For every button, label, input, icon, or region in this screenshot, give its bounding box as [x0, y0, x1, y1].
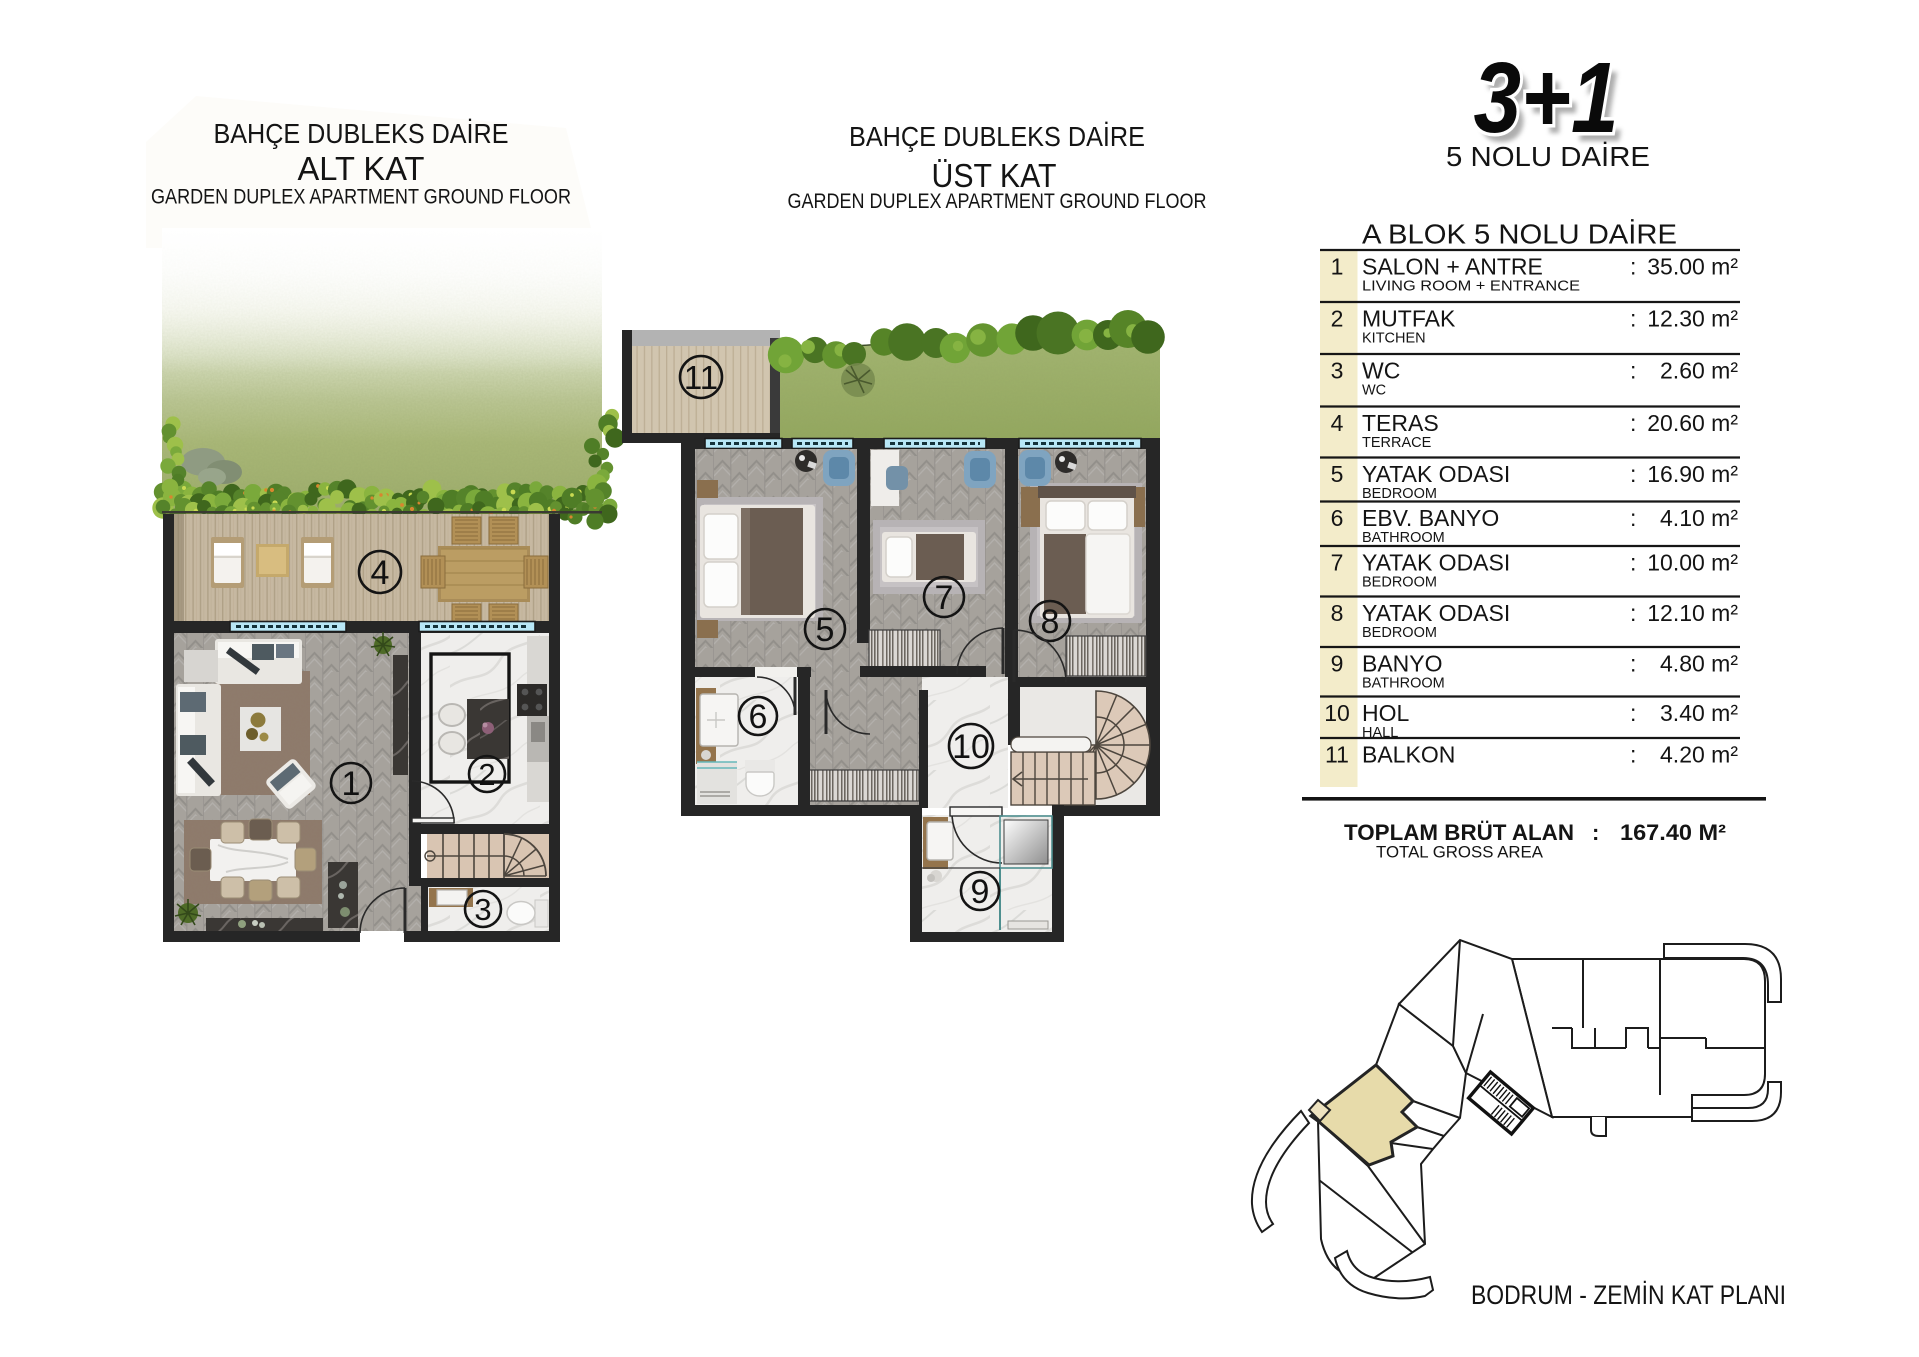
- svg-text:BEDROOM: BEDROOM: [1362, 486, 1437, 502]
- svg-text:10: 10: [1324, 700, 1350, 726]
- svg-text:LIVING ROOM + ENTRANCE: LIVING ROOM + ENTRANCE: [1362, 279, 1580, 295]
- svg-text:167.40 M²: 167.40 M²: [1620, 820, 1726, 845]
- svg-text:YATAK ODASI: YATAK ODASI: [1362, 600, 1510, 626]
- svg-text:9: 9: [971, 873, 990, 911]
- svg-text:2: 2: [1331, 306, 1344, 332]
- svg-text:HALL: HALL: [1362, 725, 1398, 741]
- svg-text::: :: [1630, 600, 1636, 626]
- svg-text::: :: [1630, 461, 1636, 487]
- svg-text:2: 2: [478, 757, 495, 792]
- svg-text:4: 4: [1331, 410, 1344, 436]
- svg-text:3.40 m²: 3.40 m²: [1660, 700, 1738, 726]
- svg-text::: :: [1630, 254, 1636, 280]
- svg-text:YATAK ODASI: YATAK ODASI: [1362, 461, 1510, 487]
- svg-text:6: 6: [749, 698, 768, 736]
- svg-text:BAHÇE DUBLEKS DAİRE: BAHÇE DUBLEKS DAİRE: [849, 121, 1145, 152]
- svg-text:MUTFAK: MUTFAK: [1362, 306, 1456, 332]
- svg-text:1: 1: [342, 765, 361, 803]
- svg-text:BATHROOM: BATHROOM: [1362, 530, 1445, 546]
- svg-text:9: 9: [1331, 651, 1344, 677]
- svg-text:WC: WC: [1362, 383, 1386, 399]
- svg-text:BODRUM - ZEMİN KAT PLANI: BODRUM - ZEMİN KAT PLANI: [1471, 1279, 1786, 1310]
- svg-text::: :: [1630, 505, 1636, 531]
- svg-text:35.00 m²: 35.00 m²: [1647, 254, 1738, 280]
- svg-text:3+1: 3+1: [1474, 42, 1619, 154]
- svg-text:10: 10: [952, 728, 990, 766]
- svg-text:BALKON: BALKON: [1362, 742, 1455, 768]
- svg-text:11: 11: [1325, 742, 1349, 768]
- svg-text:BAHÇE DUBLEKS DAİRE: BAHÇE DUBLEKS DAİRE: [214, 118, 509, 149]
- svg-text:20.60 m²: 20.60 m²: [1647, 410, 1738, 436]
- svg-text:16.90 m²: 16.90 m²: [1647, 461, 1738, 487]
- svg-text:TOPLAM BRÜT ALAN: TOPLAM BRÜT ALAN: [1344, 820, 1574, 845]
- svg-text:6: 6: [1331, 505, 1344, 531]
- svg-text:11: 11: [684, 359, 718, 396]
- svg-text:4.20 m²: 4.20 m²: [1660, 742, 1738, 768]
- svg-text:GARDEN DUPLEX APARTMENT GROUND: GARDEN DUPLEX APARTMENT GROUND FLOOR: [788, 190, 1207, 213]
- svg-text:ÜST KAT: ÜST KAT: [932, 157, 1057, 194]
- svg-text:TERAS: TERAS: [1362, 410, 1439, 436]
- svg-text:5 NOLU DAİRE: 5 NOLU DAİRE: [1446, 141, 1650, 172]
- svg-text:7: 7: [1331, 550, 1344, 576]
- svg-text::: :: [1592, 820, 1599, 845]
- svg-text:4.80 m²: 4.80 m²: [1660, 651, 1738, 677]
- svg-text:A BLOK 5 NOLU DAİRE: A BLOK 5 NOLU DAİRE: [1362, 219, 1677, 250]
- svg-text:YATAK ODASI: YATAK ODASI: [1362, 550, 1510, 576]
- svg-text:2.60 m²: 2.60 m²: [1660, 358, 1738, 384]
- svg-text:TERRACE: TERRACE: [1362, 435, 1432, 451]
- svg-text::: :: [1630, 358, 1636, 384]
- svg-text:4.10 m²: 4.10 m²: [1660, 505, 1738, 531]
- svg-text:4: 4: [371, 554, 390, 592]
- svg-text:TOTAL GROSS AREA: TOTAL GROSS AREA: [1376, 844, 1543, 862]
- svg-text:5: 5: [1331, 461, 1344, 487]
- svg-text::: :: [1630, 742, 1636, 768]
- svg-text:3: 3: [474, 892, 491, 927]
- svg-text:EBV. BANYO: EBV. BANYO: [1362, 505, 1499, 531]
- svg-text:10.00 m²: 10.00 m²: [1647, 550, 1738, 576]
- svg-text:GARDEN DUPLEX APARTMENT GROUND: GARDEN DUPLEX APARTMENT GROUND FLOOR: [151, 186, 571, 209]
- svg-text:8: 8: [1041, 603, 1060, 641]
- svg-text:SALON + ANTRE: SALON + ANTRE: [1362, 254, 1543, 280]
- svg-text:7: 7: [935, 579, 954, 617]
- svg-text:ALT KAT: ALT KAT: [298, 150, 425, 187]
- svg-text::: :: [1630, 410, 1636, 436]
- svg-text:8: 8: [1331, 600, 1344, 626]
- svg-text:WC: WC: [1362, 358, 1400, 384]
- svg-text:BEDROOM: BEDROOM: [1362, 625, 1437, 641]
- svg-text::: :: [1630, 651, 1636, 677]
- svg-text:HOL: HOL: [1362, 700, 1410, 726]
- svg-text::: :: [1630, 700, 1636, 726]
- svg-text:5: 5: [816, 611, 835, 649]
- svg-text::: :: [1630, 550, 1636, 576]
- svg-text:1: 1: [1331, 254, 1344, 280]
- svg-text:3: 3: [1331, 358, 1344, 384]
- svg-text:12.30 m²: 12.30 m²: [1647, 306, 1738, 332]
- svg-text::: :: [1630, 306, 1636, 332]
- svg-text:BANYO: BANYO: [1362, 651, 1443, 677]
- svg-text:KITCHEN: KITCHEN: [1362, 331, 1426, 347]
- svg-text:BATHROOM: BATHROOM: [1362, 676, 1445, 692]
- svg-text:12.10 m²: 12.10 m²: [1647, 600, 1738, 626]
- svg-text:BEDROOM: BEDROOM: [1362, 575, 1437, 591]
